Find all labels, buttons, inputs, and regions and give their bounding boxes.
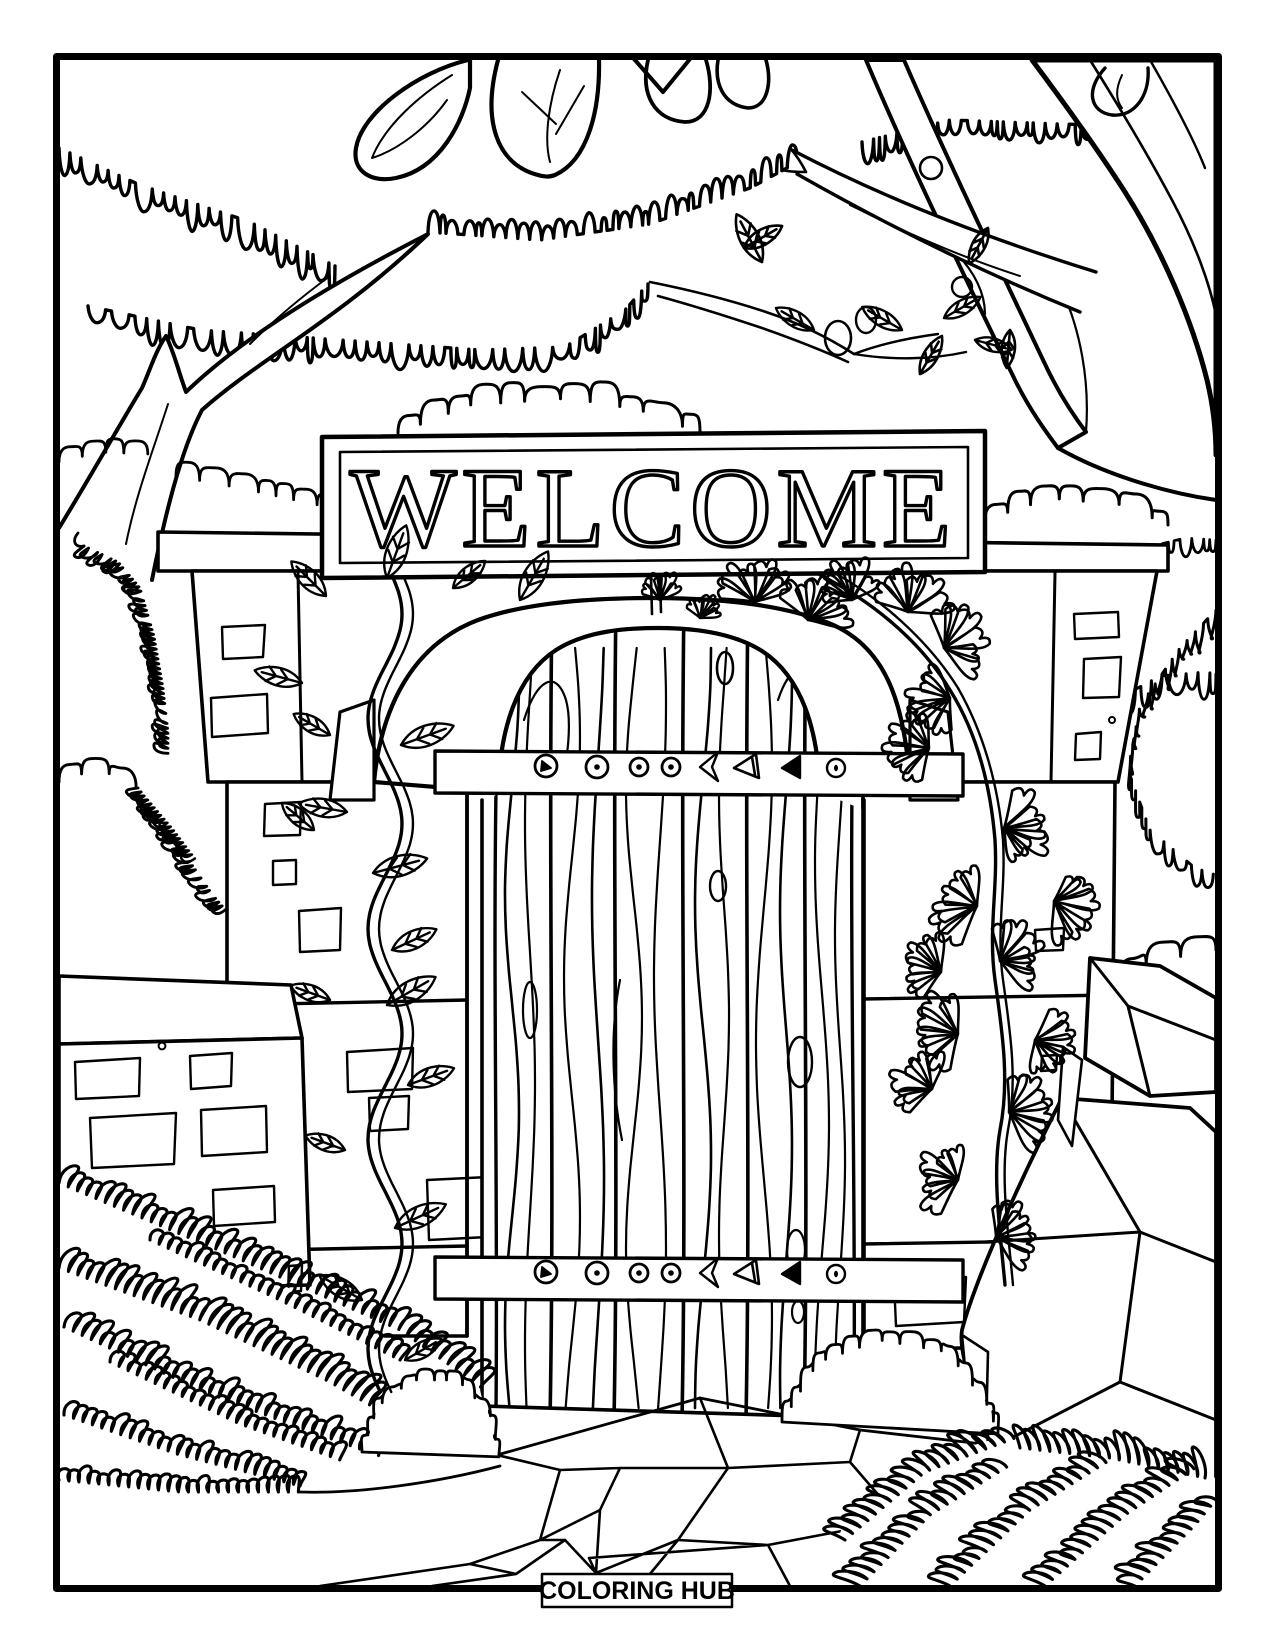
svg-text:COLORING HUB: COLORING HUB xyxy=(539,1577,735,1605)
svg-text:WELCOME: WELCOME xyxy=(350,446,956,571)
